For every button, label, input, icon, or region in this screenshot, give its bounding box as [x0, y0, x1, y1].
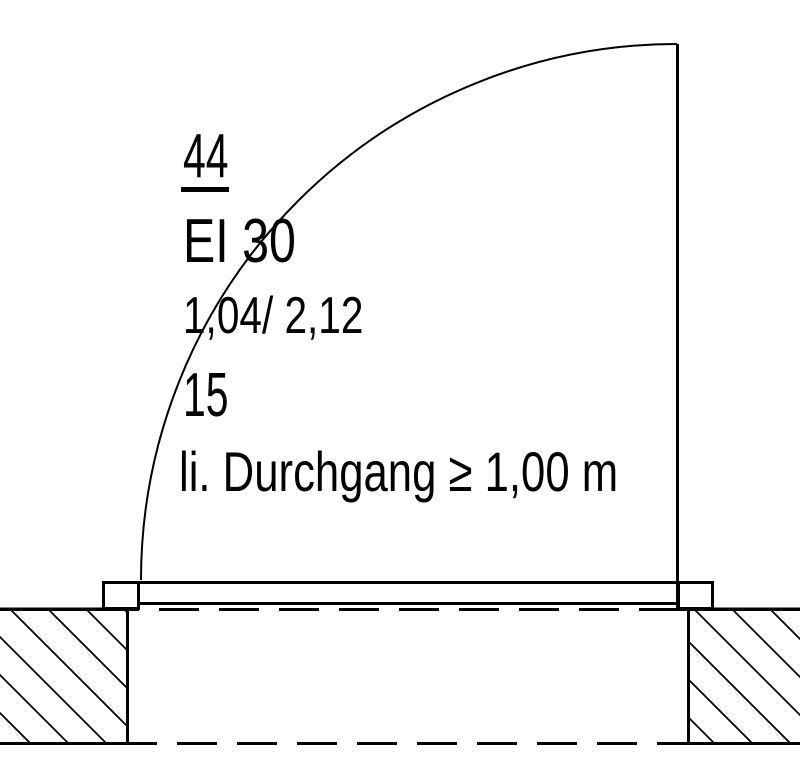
door-number-underline: [181, 187, 229, 192]
wall-right-hatch: [689, 609, 800, 744]
floor-plan-drawing: 44 EI 30 1,04/ 2,12 15 li. Durchgang ≥ 1…: [0, 0, 800, 779]
door-frame-left: [104, 583, 139, 609]
clearance-note-label: li. Durchgang ≥ 1,00 m: [179, 444, 618, 500]
door-plan-svg: [0, 0, 800, 779]
fire-rating-label: EI 30: [183, 211, 296, 273]
door-size-label: 1,04/ 2,12: [183, 290, 363, 342]
door-frame-right: [679, 583, 713, 609]
wall-left-hatch: [0, 609, 128, 744]
door-number-label: 44: [183, 126, 229, 188]
sill-height-label: 15: [183, 365, 229, 427]
